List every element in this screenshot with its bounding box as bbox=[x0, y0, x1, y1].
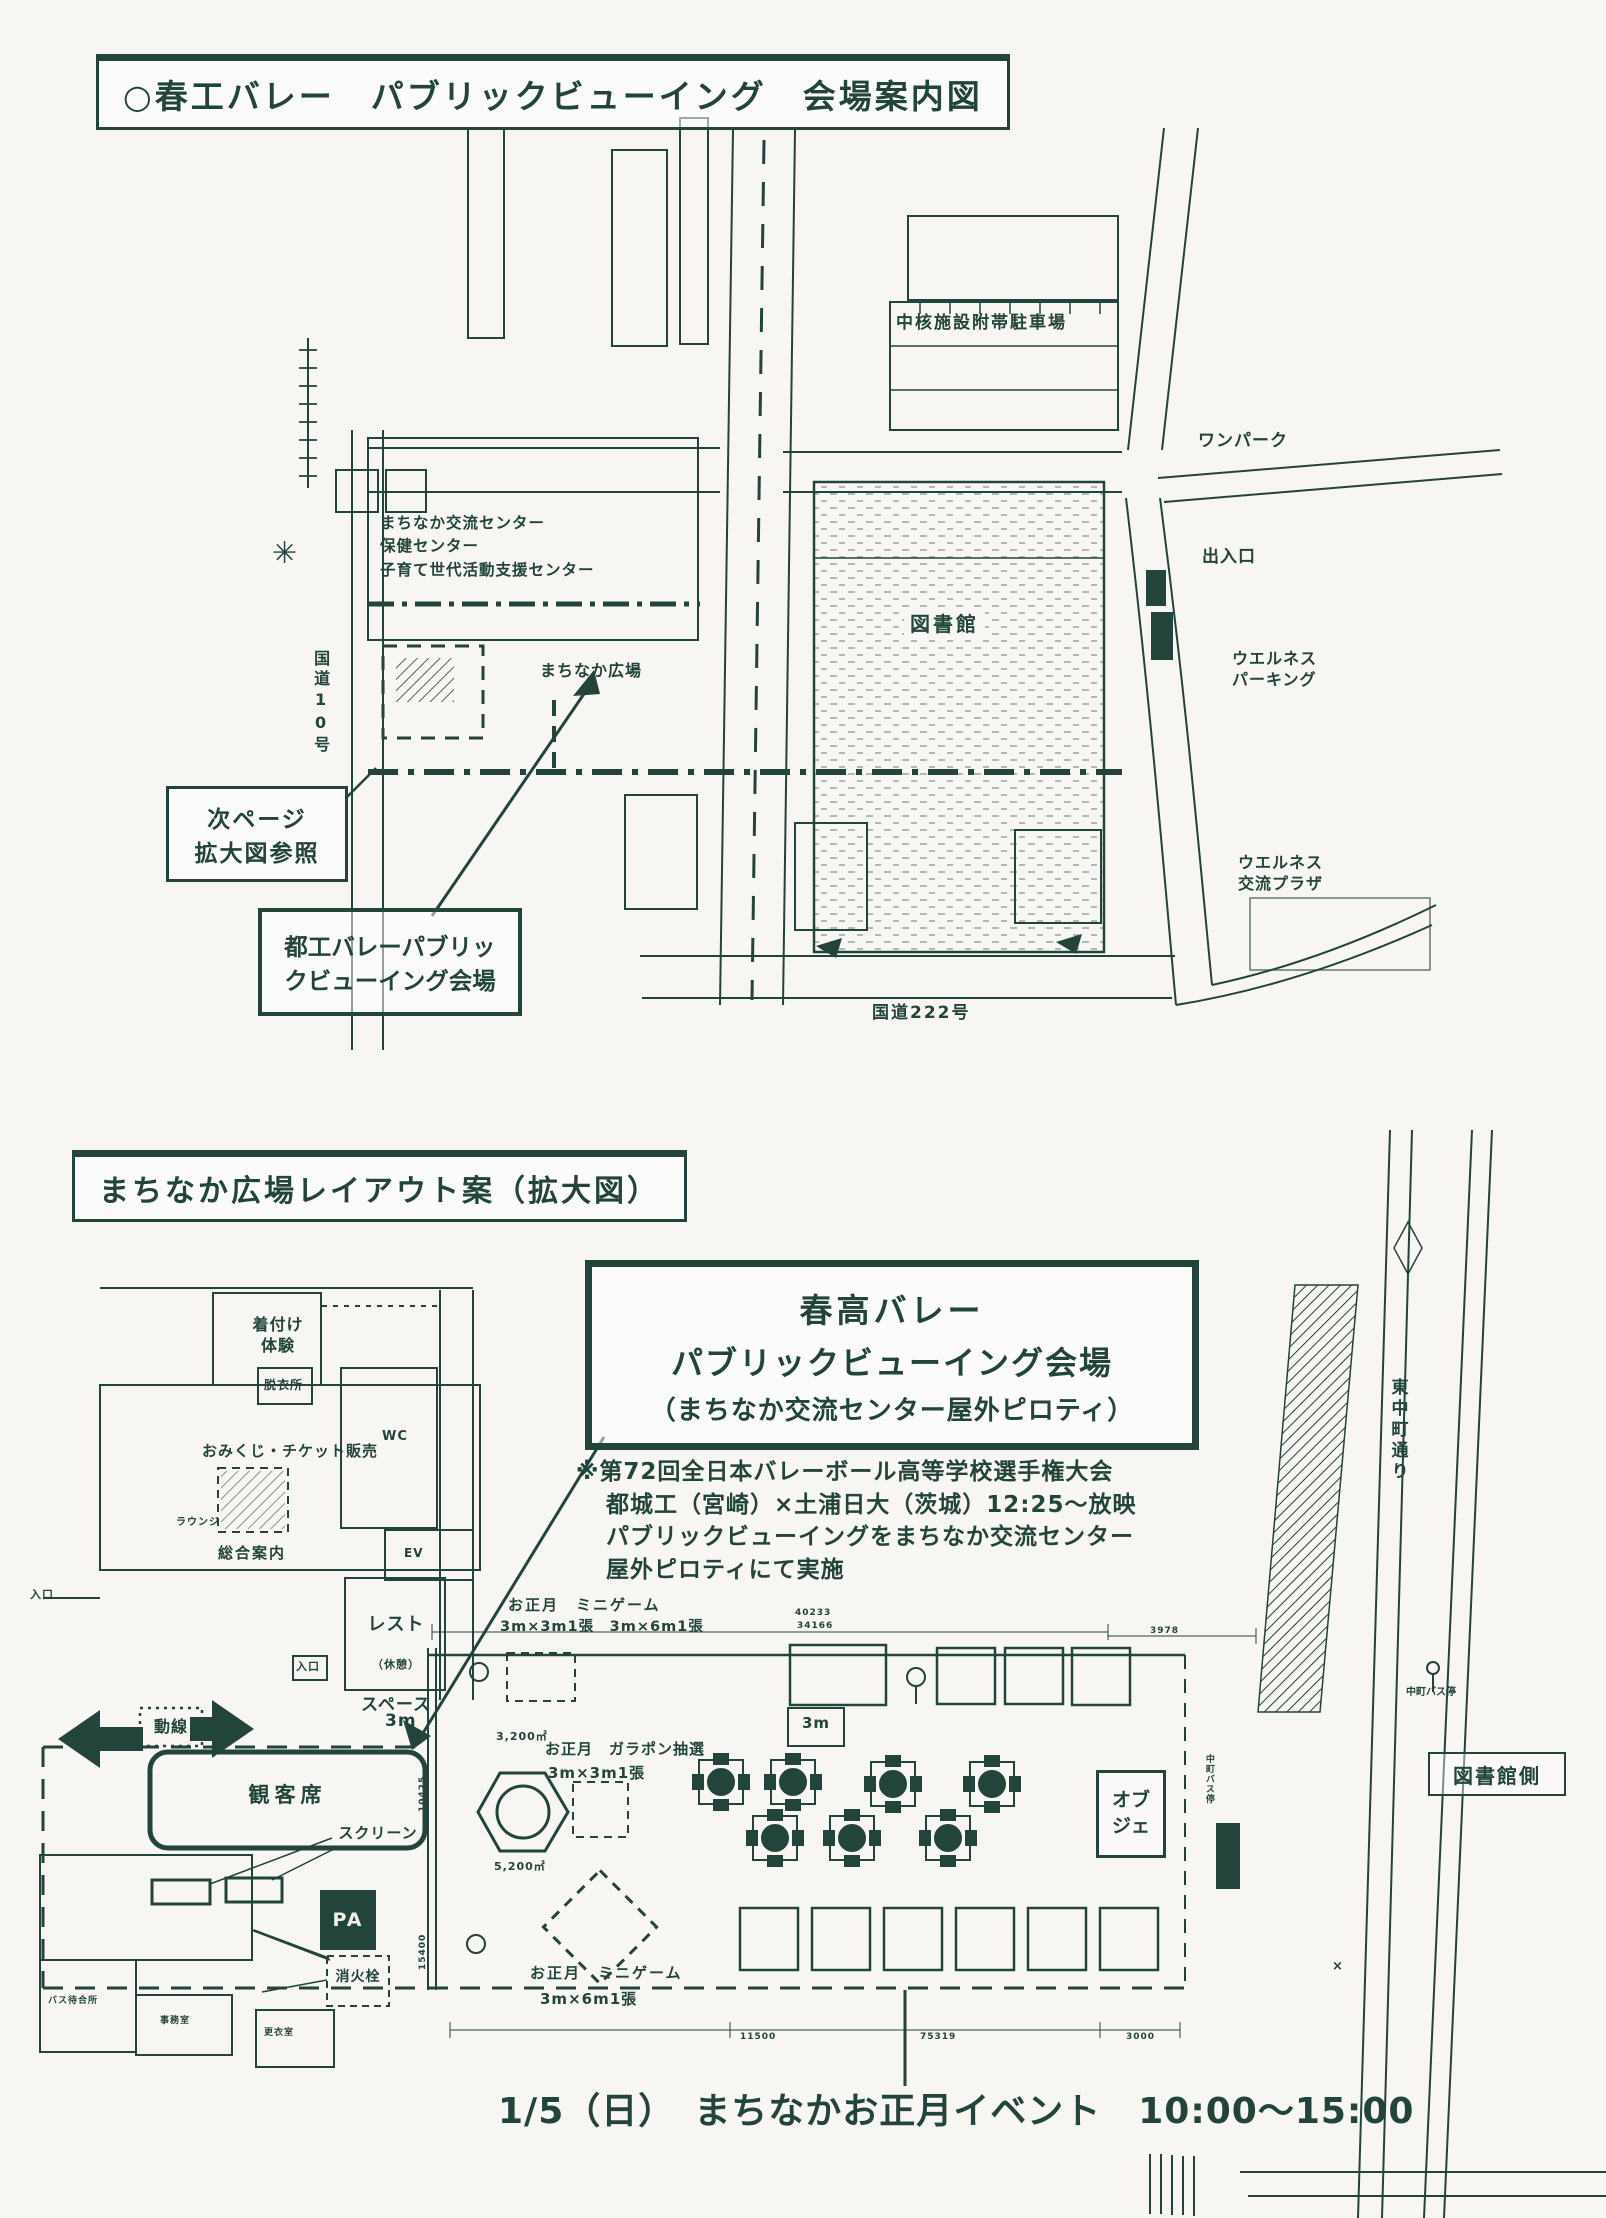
label-seats: 観客席 bbox=[150, 1782, 425, 1810]
map2-title: まちなか広場レイアウト案（拡大図） bbox=[72, 1154, 687, 1222]
library-side-box: 図書館側 bbox=[1428, 1752, 1566, 1796]
label-gap-3m: 3m bbox=[385, 1710, 417, 1732]
label-route222: 国道222号 bbox=[872, 1002, 971, 1024]
label-lounge: ラウンジ bbox=[176, 1516, 220, 1529]
label-screen: スクリーン bbox=[330, 1824, 426, 1844]
label-library: 図書館 bbox=[904, 610, 985, 638]
venue-line1: 春高バレー bbox=[800, 1284, 985, 1332]
callout-venue-map1: 都工バレーパブリッ クビューイング会場 bbox=[258, 908, 522, 1016]
label-office: 事務室 bbox=[160, 2016, 190, 2028]
label-garapon1: お正月 ガラポン抽選 bbox=[545, 1740, 705, 1760]
label-locker: 更衣室 bbox=[264, 2028, 294, 2040]
x-mark: × bbox=[1332, 1958, 1344, 1975]
label-minigame-bottom2: 3m×6m1張 bbox=[540, 1990, 637, 2010]
label-hex-area-bottom: 5,200㎡ bbox=[494, 1860, 546, 1875]
broadcast-note: ※第72回全日本バレーボール高等学校選手権大会 都城工（宮崎）×土浦日大（茨城）… bbox=[576, 1456, 1226, 1587]
label-kitsuke: 着付け 体験 bbox=[240, 1314, 316, 1356]
label-entrance-mid: 入口 bbox=[296, 1660, 320, 1675]
label-busstop-shelter: 中町バス停 bbox=[1202, 1754, 1214, 1804]
venue-callout-box: 春高バレー パブリックビューイング会場 （まちなか交流センター屋外ピロティ） bbox=[585, 1260, 1199, 1450]
dim-10425: 10425 bbox=[418, 1776, 430, 1812]
rest-line1: レスト bbox=[348, 1613, 444, 1637]
compass-icon: ✳ bbox=[272, 534, 298, 574]
map2-street bbox=[1150, 1130, 1606, 2218]
label-minigame-top2: 3m×3m1張 3m×6m1張 bbox=[500, 1618, 704, 1637]
dim-34166: 34166 bbox=[797, 1621, 833, 1633]
scanned-venue-guide-page: ○春工バレー パブリックビューイング 会場案内図 ✳ 中核施設附帯駐車場 ワンパ… bbox=[0, 0, 1606, 2218]
map1-title: ○春工バレー パブリックビューイング 会場案内図 bbox=[96, 58, 1010, 130]
label-wellness-plaza: ウエルネス 交流プラザ bbox=[1238, 852, 1323, 894]
label-minigame-bottom1: お正月 ミニゲーム bbox=[530, 1964, 683, 1984]
note-line3: パブリックビューイングをまちなか交流センター bbox=[606, 1521, 1226, 1554]
label-bus-waiting: バス待合所 bbox=[48, 1996, 98, 2008]
label-omikuji: おみくじ・チケット販売 bbox=[202, 1442, 378, 1462]
label-minigame-top1: お正月 ミニゲーム bbox=[508, 1596, 661, 1616]
dim-3978: 3978 bbox=[1150, 1626, 1179, 1638]
label-hex-area-top: 3,200㎡ bbox=[496, 1730, 548, 1745]
label-busstop: 中町バス停 bbox=[1406, 1686, 1456, 1699]
label-dousen: 動線 bbox=[142, 1716, 200, 1737]
label-tent-3m: 3m bbox=[790, 1714, 842, 1734]
label-garapon2: 3m×3m1張 bbox=[548, 1764, 645, 1784]
venue-line3: （まちなか交流センター屋外ピロティ） bbox=[650, 1390, 1134, 1427]
venue-line2: パブリックビューイング会場 bbox=[671, 1338, 1113, 1384]
label-entrance-left: 入口 bbox=[30, 1588, 54, 1603]
note-line1: ※第72回全日本バレーボール高等学校選手権大会 bbox=[576, 1456, 1226, 1489]
label-wellness-parking: ウエルネス パーキング bbox=[1232, 648, 1317, 690]
label-machinaka-hiroba: まちなか広場 bbox=[540, 660, 642, 681]
map-linework bbox=[0, 0, 1606, 2218]
dim-75319: 75319 bbox=[920, 2032, 956, 2044]
dim-15400: 15400 bbox=[418, 1934, 430, 1970]
dim-40233: 40233 bbox=[795, 1608, 831, 1620]
label-gate: 出入口 bbox=[1202, 546, 1256, 568]
label-street: 東中町通り bbox=[1386, 1378, 1408, 1483]
label-machinaka-center: まちなか交流センター 保健センター 子育て世代活動支援センター bbox=[380, 512, 595, 582]
event-caption: 1/5（日） まちなかお正月イベント 10:00～15:00 bbox=[498, 2088, 1414, 2136]
label-onepark: ワンパーク bbox=[1198, 430, 1288, 452]
rest-line2: （休憩） bbox=[348, 1658, 444, 1673]
note-line4: 屋外ピロティにて実施 bbox=[606, 1554, 1226, 1587]
obje-box: オブ ジェ bbox=[1096, 1770, 1166, 1858]
label-core-parking: 中核施設附帯駐車場 bbox=[896, 312, 1067, 334]
label-datsuisho: 脱衣所 bbox=[264, 1378, 303, 1394]
label-wc: WC bbox=[382, 1428, 408, 1445]
callout-next-page: 次ページ 拡大図参照 bbox=[166, 786, 348, 882]
label-hydrant: 消火栓 bbox=[328, 1968, 388, 1986]
label-sogo-annai: 総合案内 bbox=[218, 1544, 286, 1564]
label-route10: 国道10号 bbox=[310, 650, 331, 756]
label-ev: EV bbox=[404, 1546, 423, 1562]
dim-11500: 11500 bbox=[740, 2032, 776, 2044]
dim-3000: 3000 bbox=[1126, 2032, 1155, 2044]
note-line2: 都城工（宮崎）×土浦日大（茨城）12:25～放映 bbox=[606, 1489, 1226, 1522]
pa-box: PA bbox=[320, 1890, 376, 1950]
